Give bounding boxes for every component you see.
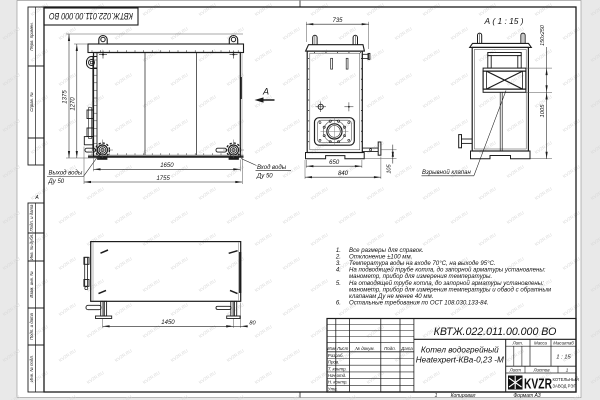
svg-text:150х250: 150х250 — [540, 25, 546, 46]
svg-text:Лист: Лист — [336, 346, 349, 351]
svg-text:1450: 1450 — [161, 320, 175, 326]
svg-text:1755: 1755 — [156, 176, 170, 182]
svg-text:Взрывной клапан: Взрывной клапан — [422, 169, 471, 176]
svg-text:Лит.: Лит. — [512, 341, 523, 346]
svg-text:5.: 5. — [336, 280, 341, 287]
svg-text:80: 80 — [249, 321, 256, 327]
svg-text:1 : 15: 1 : 15 — [556, 355, 571, 361]
svg-text:Утв.: Утв. — [328, 386, 338, 391]
svg-text:650: 650 — [329, 160, 340, 166]
svg-text:Лист: Лист — [509, 368, 522, 373]
svg-text:Вход воды: Вход воды — [257, 165, 287, 171]
svg-text:1650: 1650 — [160, 163, 174, 169]
svg-text:КВТЖ.022.011.00.000 ВО: КВТЖ.022.011.00.000 ВО — [434, 326, 557, 338]
svg-text:Heatexpert-КВа-0,23 -М: Heatexpert-КВа-0,23 -М — [416, 356, 504, 365]
svg-text:Пров.: Пров. — [328, 360, 340, 365]
svg-text:Т. контр.: Т. контр. — [328, 366, 347, 371]
svg-text:Листов: Листов — [533, 368, 551, 373]
svg-text:105: 105 — [387, 163, 393, 173]
svg-text:Перв. примен.: Перв. примен. — [29, 22, 34, 51]
svg-text:№ докум.: № докум. — [355, 346, 374, 351]
svg-text:А ( 1 : 15 ): А ( 1 : 15 ) — [483, 16, 523, 26]
svg-text:1: 1 — [435, 393, 438, 399]
svg-text:Инв. № подл.: Инв. № подл. — [29, 355, 34, 382]
svg-text:Формат А3: Формат А3 — [513, 393, 541, 399]
svg-text:4.: 4. — [336, 267, 341, 274]
svg-text:Н. контр.: Н. контр. — [328, 380, 348, 385]
svg-text:Выход воды: Выход воды — [49, 171, 83, 177]
svg-text:Ду 50: Ду 50 — [256, 173, 273, 179]
svg-text:А: А — [262, 87, 269, 97]
svg-text:1: 1 — [566, 368, 569, 373]
svg-text:КОТЕЛЬНЫЙ: КОТЕЛЬНЫЙ — [553, 377, 579, 382]
svg-text:840: 840 — [338, 171, 349, 177]
svg-text:Копировал: Копировал — [451, 393, 476, 399]
svg-text:Котел водогрейный: Котел водогрейный — [421, 346, 499, 355]
svg-text:Изм: Изм — [327, 346, 335, 351]
svg-text:6.: 6. — [336, 299, 341, 306]
svg-text:Нач.отд.: Нач.отд. — [328, 373, 347, 378]
svg-text:Масса: Масса — [534, 341, 548, 346]
svg-text:Подп. и дата: Подп. и дата — [29, 204, 34, 232]
svg-text:1270: 1270 — [70, 97, 76, 111]
svg-text:Дата: Дата — [400, 346, 413, 351]
svg-text:1005: 1005 — [540, 104, 546, 118]
svg-text:Остальные требования по ОСТ 10: Остальные требования по ОСТ 108.030.133-… — [349, 299, 489, 306]
svg-text:1375: 1375 — [63, 90, 69, 104]
svg-text:Подп. и дата: Подп. и дата — [29, 312, 34, 340]
svg-text:KVZR: KVZR — [524, 376, 552, 393]
svg-text:Подп.: Подп. — [384, 346, 396, 351]
svg-text:Разраб.: Разраб. — [328, 353, 344, 358]
svg-text:ЗАВОД РЭП: ЗАВОД РЭП — [553, 384, 577, 389]
svg-text:КВТЖ.022.011.00.000 ВО: КВТЖ.022.011.00.000 ВО — [49, 11, 133, 21]
svg-text:Взам. инв. №: Взам. инв. № — [29, 271, 34, 298]
svg-text:Справ. №: Справ. № — [29, 92, 34, 112]
svg-text:Ду 50: Ду 50 — [48, 179, 65, 185]
svg-text:Инв. № дубл.: Инв. № дубл. — [29, 234, 34, 260]
svg-text:А: А — [34, 195, 39, 201]
svg-text:Масштаб: Масштаб — [553, 341, 574, 346]
svg-text:735: 735 — [332, 18, 343, 24]
